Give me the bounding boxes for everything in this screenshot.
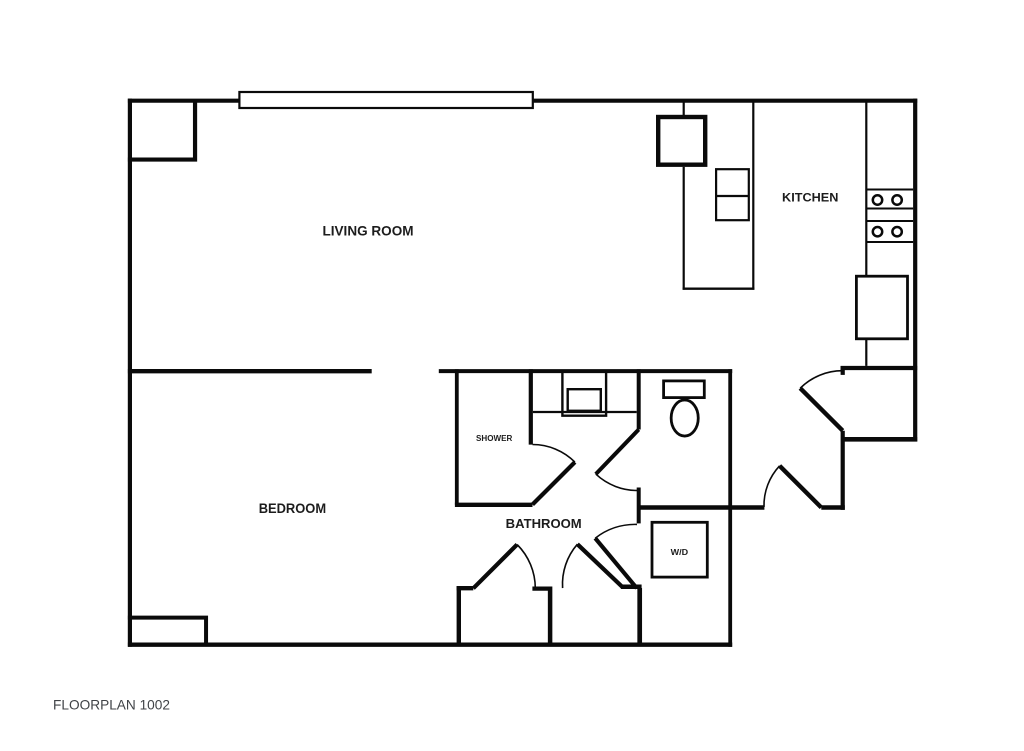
svg-text:KITCHEN: KITCHEN <box>782 190 838 204</box>
svg-text:SHOWER: SHOWER <box>476 434 513 443</box>
svg-text:BEDROOM: BEDROOM <box>259 501 326 516</box>
svg-text:LIVING ROOM: LIVING ROOM <box>323 224 414 239</box>
svg-text:BATHROOM: BATHROOM <box>506 516 582 531</box>
svg-text:FLOORPLAN 1002: FLOORPLAN 1002 <box>53 697 170 713</box>
svg-text:W/D: W/D <box>671 547 689 557</box>
